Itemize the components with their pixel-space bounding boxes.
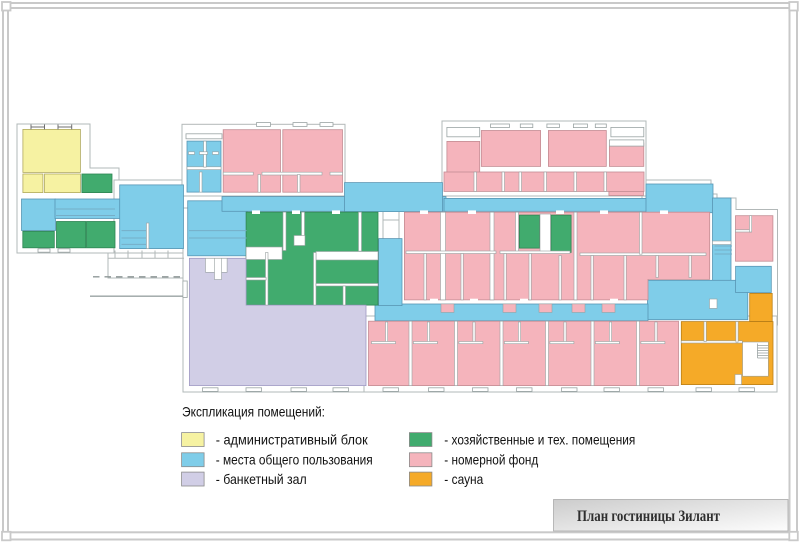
svg-text:- места общего пользования: - места общего пользования xyxy=(216,452,373,468)
svg-text:План гостиницы Зилант: План гостиницы Зилант xyxy=(577,508,720,525)
svg-text:- хозяйственные и тех. помещен: - хозяйственные и тех. помещения xyxy=(444,431,635,447)
svg-text:Экспликация помещений:: Экспликация помещений: xyxy=(182,404,325,420)
svg-text:- номерной фонд: - номерной фонд xyxy=(444,452,538,468)
svg-text:- административный блок: - административный блок xyxy=(216,431,369,447)
svg-text:- сауна: - сауна xyxy=(444,471,483,487)
svg-text:- банкетный зал: - банкетный зал xyxy=(216,471,307,487)
